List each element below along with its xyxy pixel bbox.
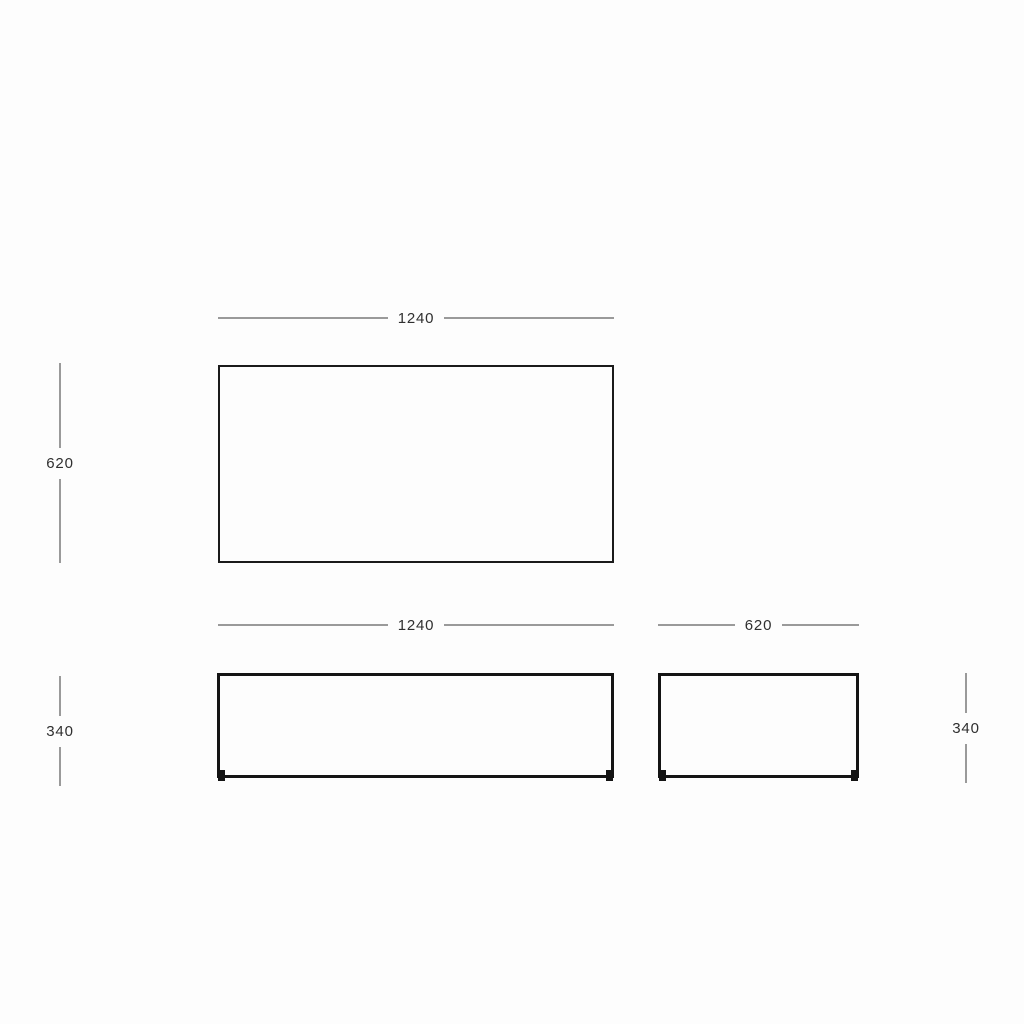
dim-label-front-height: 340	[46, 724, 73, 739]
dim-line-lower-segment	[59, 479, 61, 564]
front-view-foot-left	[218, 770, 225, 781]
side-view-outline	[658, 673, 859, 778]
dim-label-side-width: 620	[745, 618, 772, 633]
front-view-foot-right	[606, 770, 613, 781]
dimension-drawing: 1240 620 1240 340 620 340	[0, 0, 1024, 1024]
dim-front-view-height: 340	[36, 676, 84, 786]
side-view-foot-right	[851, 770, 858, 781]
dim-line-left-segment	[658, 624, 735, 626]
dim-label-top-width: 1240	[398, 311, 435, 326]
dim-front-view-width: 1240	[218, 613, 614, 637]
dim-label-front-width: 1240	[398, 618, 435, 633]
dim-line-left-segment	[218, 317, 388, 319]
dim-line-right-segment	[782, 624, 859, 626]
dim-line-lower-segment	[965, 744, 967, 784]
dim-line-lower-segment	[59, 747, 61, 787]
dim-side-view-height: 340	[942, 673, 990, 783]
front-view-outline	[217, 673, 614, 778]
dim-line-upper-segment	[59, 676, 61, 716]
dim-label-side-height: 340	[952, 721, 979, 736]
side-view-foot-left	[659, 770, 666, 781]
top-view-outline	[218, 365, 614, 563]
dim-line-upper-segment	[59, 363, 61, 448]
dim-line-right-segment	[444, 624, 614, 626]
dim-line-right-segment	[444, 317, 614, 319]
dim-line-upper-segment	[965, 673, 967, 713]
dim-line-left-segment	[218, 624, 388, 626]
dim-top-view-depth: 620	[36, 363, 84, 563]
dim-top-view-width: 1240	[218, 306, 614, 330]
dim-label-top-depth: 620	[46, 456, 73, 471]
dim-side-view-width: 620	[658, 613, 859, 637]
